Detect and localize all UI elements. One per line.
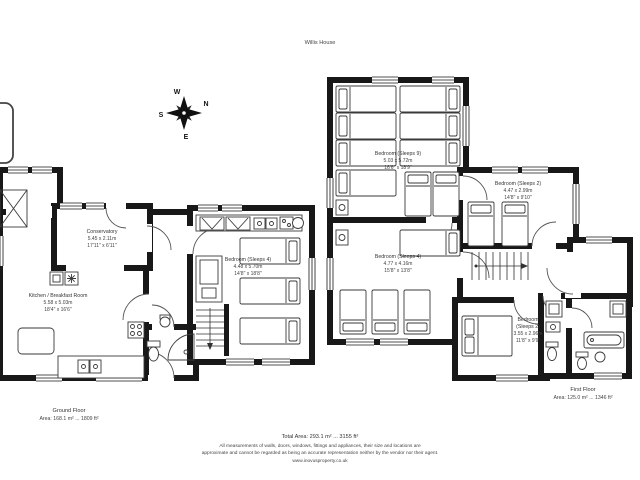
kitchen-counter xyxy=(58,356,144,378)
room-dims-imperial: 17'11" x 6'11" xyxy=(87,243,117,249)
shower-icon xyxy=(546,301,562,317)
room-dims-metric: 3.55 x 2.96m xyxy=(514,331,543,337)
room-label: Bedroom (Sleeps 2) xyxy=(495,181,541,187)
compass-e: E xyxy=(184,134,189,141)
room-label: Bedroom xyxy=(517,317,538,323)
bed-icon xyxy=(502,202,528,246)
hob-icon xyxy=(128,322,144,338)
shower-icon xyxy=(610,301,626,317)
bed-icon xyxy=(405,172,431,216)
room-dims-imperial: 14'8" x 9'10" xyxy=(504,195,532,201)
bed-icon xyxy=(400,230,460,256)
first-floor-plan: Bedroom (Sleeps 9) 5.03 x 5.72m 16'6" x … xyxy=(327,77,630,401)
floor-area: Area: 125.0 m² ... 1346 ft² xyxy=(553,395,612,401)
sink-icon xyxy=(336,200,348,215)
room-label: Conservatory xyxy=(87,229,118,235)
room-label: Bedroom (Sleeps 4) xyxy=(375,254,421,260)
total-area: Total Area: 293.1 m² ... 3155 ft² xyxy=(282,434,359,440)
room-label: Bedroom (Sleeps 4) xyxy=(225,257,271,263)
bed-icon xyxy=(240,318,300,344)
bed-icon xyxy=(404,290,430,334)
kitchenette-counter xyxy=(196,215,304,231)
bed-icon xyxy=(433,172,459,216)
room-dims-metric: 4.48 x 5.70m xyxy=(234,264,263,270)
room-dims-imperial: 15'8" x 13'8" xyxy=(384,268,412,274)
double-bed-icon xyxy=(462,316,512,356)
sink-icon xyxy=(160,315,170,327)
disclaimer-line2: approximate and cannot be regarded as be… xyxy=(202,450,439,456)
bed-icon xyxy=(400,113,460,139)
bed-icon xyxy=(468,202,494,246)
bed-icon xyxy=(340,290,366,334)
room-dims-metric: 5.03 x 5.72m xyxy=(384,158,413,164)
wardrobe-icon xyxy=(196,256,222,302)
bed-icon xyxy=(372,290,398,334)
room-label: Kitchen / Breakfast Room xyxy=(29,293,88,299)
room-dims-metric: 4.47 x 2.99m xyxy=(504,188,533,194)
room-label: Bedroom (Sleeps 9) xyxy=(375,151,421,157)
room-dims-imperial: 18'4" x 16'6" xyxy=(44,307,72,313)
room-dims-imperial: 16'6" x 18'9" xyxy=(384,165,412,171)
website-link: www.inovusproperty.co.uk xyxy=(292,458,348,464)
room-dims-metric: 5.58 x 5.03m xyxy=(44,300,73,306)
bed-icon xyxy=(400,86,460,112)
floor-label: Ground Floor xyxy=(53,408,86,414)
room-dims-imperial: 11'8" x 9'9" xyxy=(516,338,540,344)
compass-s: S xyxy=(159,112,164,119)
floorplan-drawing: Willis House W N S E xyxy=(0,0,640,480)
room-dims-metric: 4.77 x 4.16m xyxy=(384,261,413,267)
toilet-icon xyxy=(576,352,588,370)
floorplan-page: Willis House W N S E xyxy=(0,0,640,480)
floor-label: First Floor xyxy=(570,387,595,393)
room-label-2: (Sleeps 2) xyxy=(516,324,540,330)
bed-icon xyxy=(336,86,396,112)
room-dims-imperial: 14'8" x 18'8" xyxy=(234,271,262,277)
page-title: Willis House xyxy=(305,40,336,46)
bathtub-icon xyxy=(584,332,624,348)
compass-rose-icon: W N S E xyxy=(159,89,209,141)
floor-area: Area: 168.1 m² ... 1809 ft² xyxy=(39,416,98,422)
room-dims-metric: 5.45 x 2.11m xyxy=(88,236,117,242)
bed-icon xyxy=(336,113,396,139)
sink-icon xyxy=(546,322,560,332)
compass-w: W xyxy=(174,89,181,96)
bed-icon xyxy=(336,170,396,196)
outbuilding xyxy=(0,103,13,163)
ground-floor-plan: Conservatory 5.45 x 2.11m 17'11" x 6'11"… xyxy=(0,103,315,422)
compass-n: N xyxy=(203,101,208,108)
disclaimer-line1: All measurements of walls, doors, window… xyxy=(219,443,421,449)
toilet-icon xyxy=(147,341,160,361)
footer: Total Area: 293.1 m² ... 3155 ft² All me… xyxy=(202,434,439,464)
sink-icon xyxy=(336,230,348,245)
kitchen-table xyxy=(18,328,54,354)
sink-icon xyxy=(595,352,605,362)
bed-icon xyxy=(240,278,300,304)
